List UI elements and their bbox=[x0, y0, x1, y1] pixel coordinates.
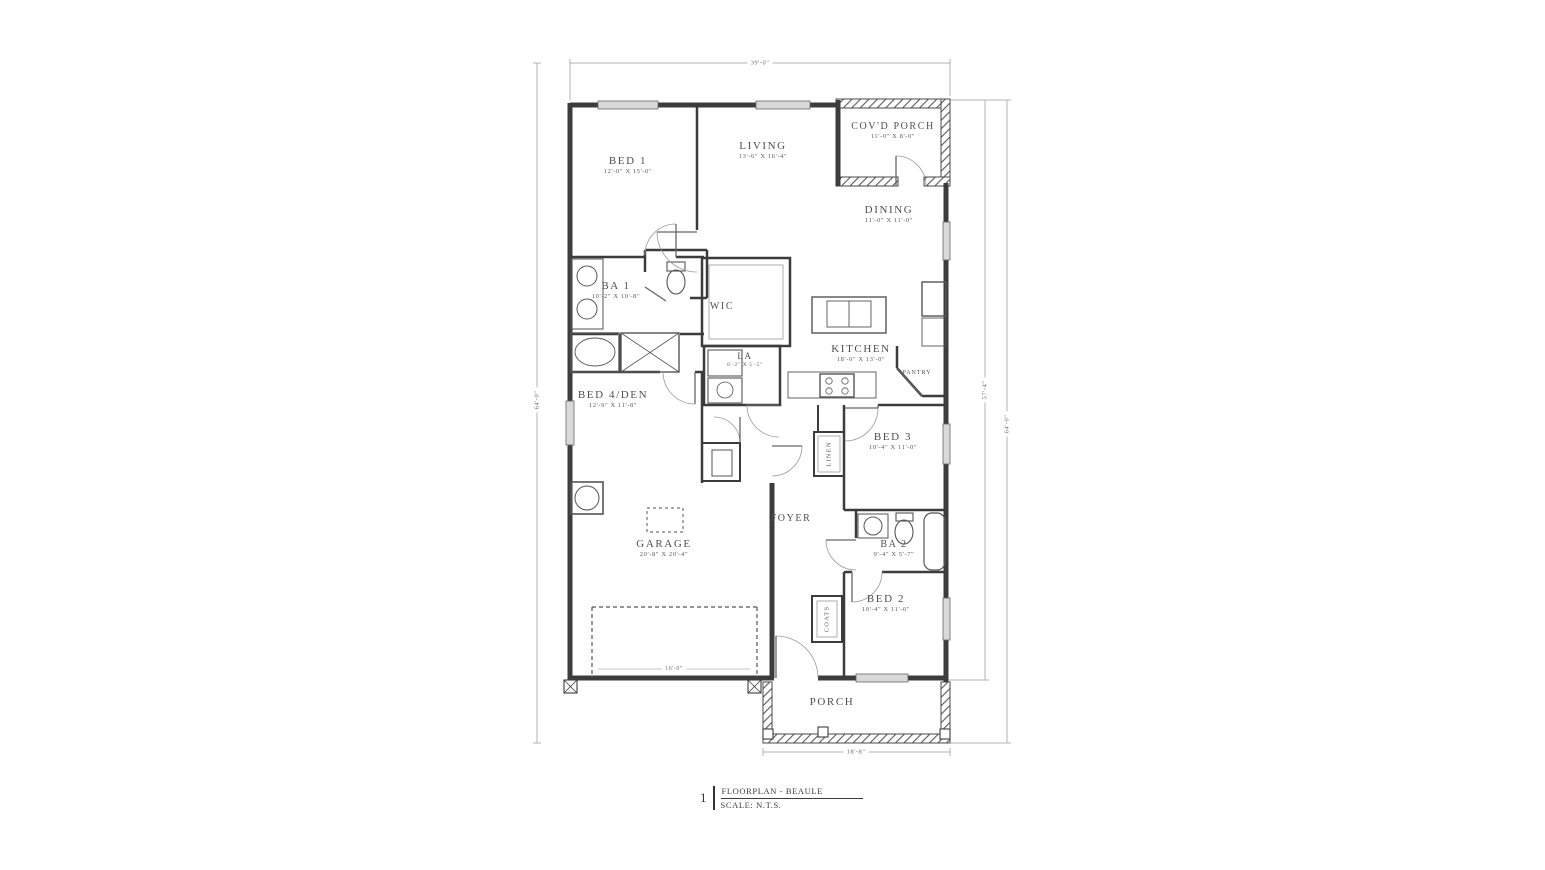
garage-items bbox=[571, 450, 757, 678]
refrigerator bbox=[922, 282, 946, 316]
dim-left: 64'-0" bbox=[534, 388, 541, 413]
dim-garage-door: 16'-0" bbox=[662, 666, 686, 672]
outer-walls bbox=[568, 100, 946, 682]
dim-right-outer: 64'-0" bbox=[1004, 412, 1011, 437]
dim-right-inner: 57'-4" bbox=[982, 378, 989, 403]
floorplan-drawing bbox=[0, 0, 1545, 870]
room-label-coats: COATS bbox=[824, 606, 831, 633]
hatched-walls bbox=[763, 99, 950, 743]
drawing-scale: SCALE: N.T.S. bbox=[721, 800, 863, 810]
drawing-number: 1 bbox=[700, 786, 707, 810]
washer bbox=[708, 350, 742, 376]
attic-access bbox=[647, 508, 683, 532]
posts bbox=[564, 680, 950, 739]
dim-porch-width: 18'-8" bbox=[844, 749, 869, 756]
bath2-fixtures bbox=[858, 513, 945, 570]
floorplan-sheet: BED 1 12'-0" X 15'-0" LIVING 13'-6" X 16… bbox=[0, 0, 1545, 870]
interior-walls bbox=[570, 105, 946, 678]
kitchen-fixtures bbox=[788, 282, 946, 398]
drawing-title: FLOORPLAN - BEAULE bbox=[721, 786, 863, 799]
cabinet bbox=[922, 318, 946, 346]
water-heater bbox=[575, 486, 599, 510]
toilet bbox=[667, 270, 685, 294]
bath1-fixtures bbox=[571, 259, 685, 372]
toilet2 bbox=[895, 520, 913, 544]
laundry-appliances bbox=[708, 350, 742, 403]
door-swings bbox=[645, 156, 926, 678]
tub2 bbox=[924, 513, 945, 570]
counter bbox=[788, 372, 876, 398]
dim-top: 39'-0" bbox=[748, 60, 773, 67]
title-block: 1 FLOORPLAN - BEAULE SCALE: N.T.S. bbox=[700, 786, 863, 810]
range bbox=[820, 374, 854, 397]
room-label-linen: LINEN bbox=[826, 441, 833, 467]
windows bbox=[566, 101, 950, 682]
title-block-divider bbox=[713, 786, 715, 810]
